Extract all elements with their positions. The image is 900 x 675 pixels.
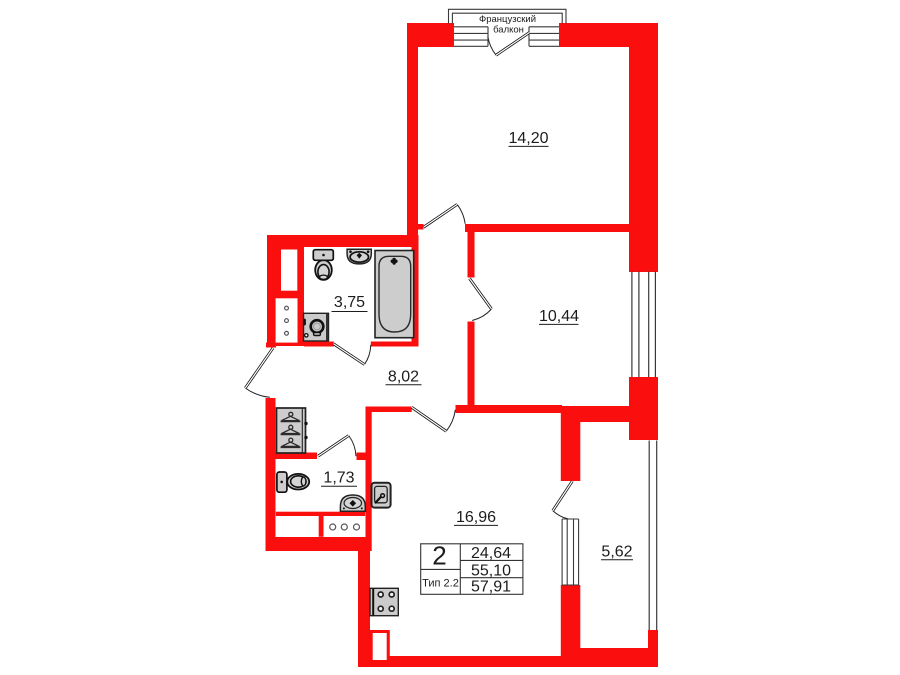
svg-text:2: 2 xyxy=(432,541,446,571)
svg-text:14,20: 14,20 xyxy=(508,130,548,147)
svg-text:10,44: 10,44 xyxy=(539,308,579,325)
svg-text:3,75: 3,75 xyxy=(334,294,365,311)
svg-text:5,62: 5,62 xyxy=(601,544,632,561)
svg-text:1,73: 1,73 xyxy=(323,470,354,487)
svg-text:балкон: балкон xyxy=(493,24,524,35)
svg-text:55,10: 55,10 xyxy=(471,562,511,579)
svg-text:16,96: 16,96 xyxy=(456,509,496,526)
svg-text:57,91: 57,91 xyxy=(471,579,511,596)
svg-text:Тип 2.2: Тип 2.2 xyxy=(422,578,459,590)
svg-text:8,02: 8,02 xyxy=(388,368,419,385)
svg-text:24,64: 24,64 xyxy=(471,545,511,562)
